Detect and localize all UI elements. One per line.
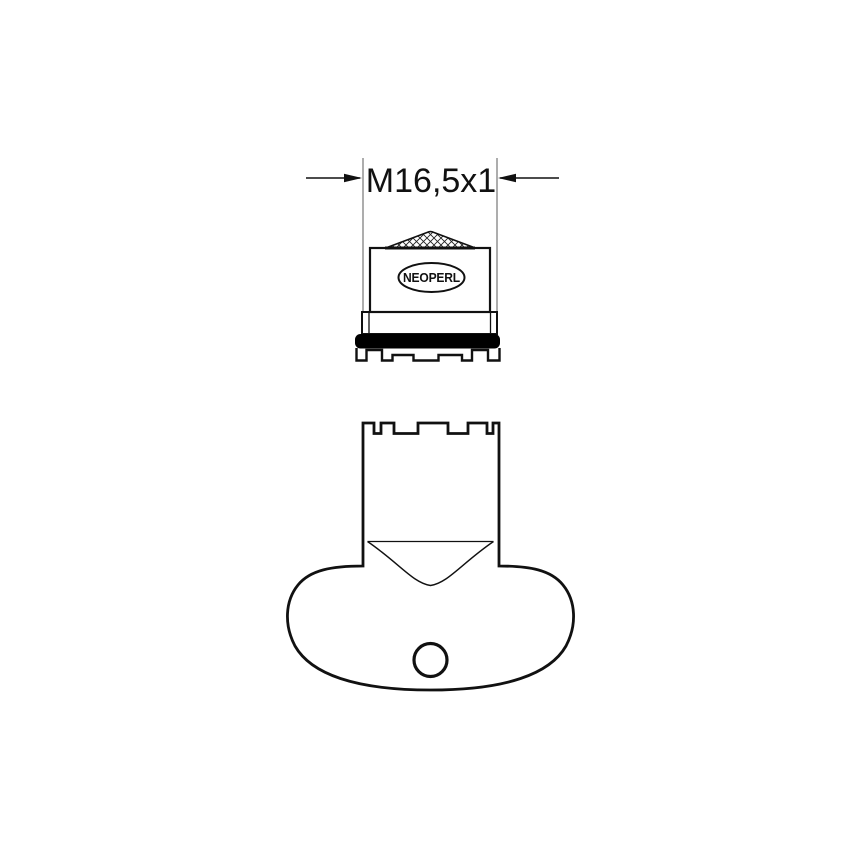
- brand-label: NEOPERL: [403, 270, 460, 285]
- aerator-thread-band: [362, 312, 497, 334]
- dimension-arrow-right: [498, 174, 559, 183]
- dimension-label: M16,5x1: [366, 162, 496, 200]
- dimension-arrow-left: [306, 174, 362, 183]
- aerator-drawing: NEOPERL: [355, 232, 500, 361]
- aerator-gasket: [355, 334, 500, 349]
- key-outline: [287, 423, 573, 690]
- aerator-technical-drawing: M16,5x1 NEOPERL: [0, 0, 868, 868]
- key-drawing: [287, 423, 573, 690]
- aerator-mesh-dome: [387, 232, 474, 248]
- aerator-castellation: [357, 348, 500, 361]
- technical-drawing-page: M16,5x1 NEOPERL: [0, 0, 868, 868]
